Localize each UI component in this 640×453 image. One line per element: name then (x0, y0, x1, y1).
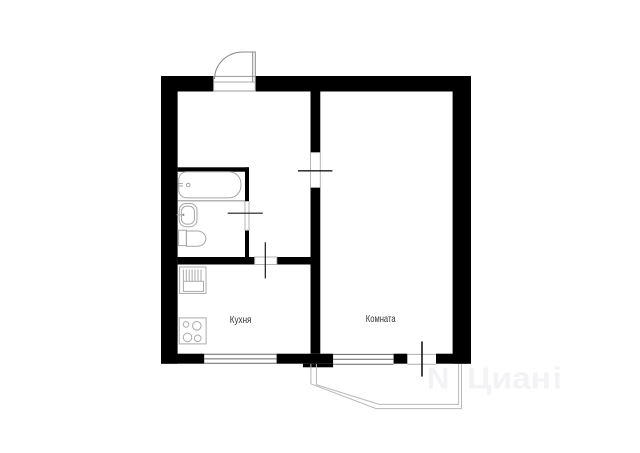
svg-text:Кухня: Кухня (230, 315, 252, 326)
svg-text:Циан: Циан (467, 361, 551, 396)
svg-text:Комната: Комната (366, 314, 396, 325)
svg-text:i: i (553, 361, 562, 396)
svg-text:N: N (427, 361, 449, 396)
